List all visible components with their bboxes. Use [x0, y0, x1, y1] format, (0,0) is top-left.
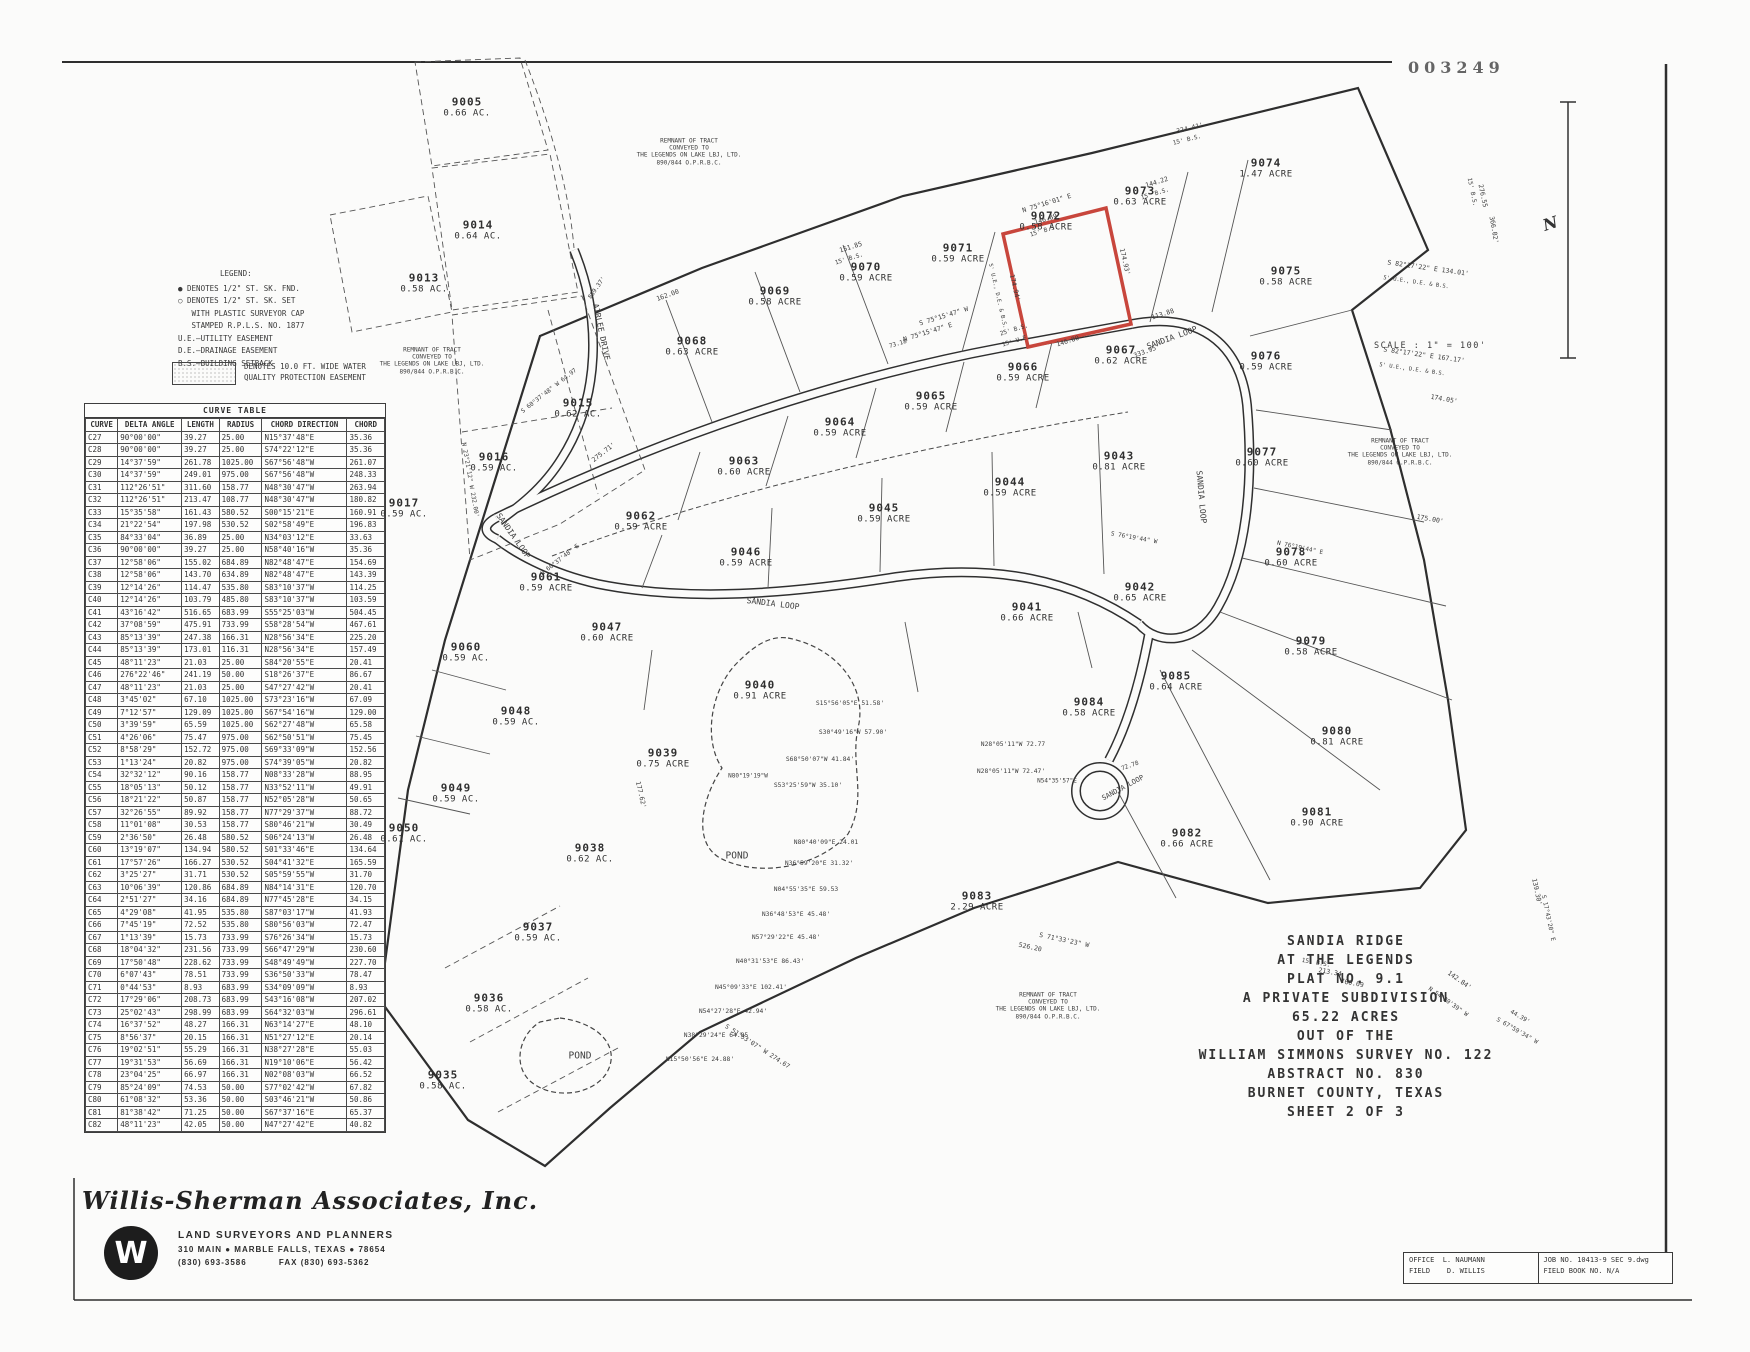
title-line: A PRIVATE SUBDIVISION: [1190, 989, 1502, 1008]
map-annotation: N80°19'19"W: [728, 772, 768, 779]
info-left: OFFICE L. NAUMANNFIELD D. WILLIS: [1404, 1253, 1539, 1283]
map-annotation: 146.80: [1056, 335, 1081, 349]
map-annotation: SANDIA LOOP: [1194, 470, 1208, 524]
note-layer: SANDIA LOOPSANDIA LOOPSANDIA LOOPSANDIA …: [0, 0, 1750, 1352]
map-annotation: SANDIA LOOP: [746, 596, 800, 612]
map-annotation: AIRLEE DRIVE: [590, 303, 611, 362]
map-annotation: S 82°17'22" E 134.01': [1387, 259, 1469, 278]
title-line: BURNET COUNTY, TEXAS: [1190, 1084, 1502, 1103]
map-annotation: N36°59'20"E 31.32': [785, 860, 853, 868]
map-annotation: 174.94': [1007, 274, 1021, 302]
title-block-lines: SANDIA RIDGEAT THE LEGENDSPLAT NO. 9.1A …: [1190, 932, 1502, 1122]
map-annotation: POND: [569, 1050, 592, 1061]
firm-logo-letter: W: [114, 1236, 147, 1271]
map-annotation: S 76°19'44" W: [1110, 530, 1158, 545]
info-left-line: FIELD D. WILLIS: [1409, 1266, 1533, 1277]
firm-tagline: LAND SURVEYORS AND PLANNERS: [178, 1230, 394, 1241]
map-annotation: N36°48'53"E 45.48': [762, 911, 830, 919]
title-line: ABSTRACT NO. 830: [1190, 1065, 1502, 1084]
map-annotation: 889.37': [587, 276, 607, 301]
plat-sheet: 003249 SCALE : 1" = 100' N LEGEND: ● DEN…: [0, 0, 1750, 1352]
info-left-line: OFFICE L. NAUMANN: [1409, 1255, 1533, 1266]
map-annotation: SANDIA LOOP: [1101, 773, 1146, 802]
map-annotation: N 23°21'12" W 232.00': [460, 442, 480, 518]
firm-logo: W: [104, 1226, 158, 1280]
info-right: JOB NO. 10413-9 SEC 9.dwgFIELD BOOK NO. …: [1539, 1253, 1673, 1283]
map-annotation: 15' B.S.: [1140, 186, 1170, 201]
map-annotation: REMNANT OF TRACT CONVEYED TO THE LEGENDS…: [380, 347, 485, 376]
map-annotation: N80°40'09"E 24.01: [794, 839, 858, 847]
firm-name: Willis-Sherman Associates, Inc.: [82, 1186, 538, 1215]
map-annotation: 5' U.E., D.E. & B.S.: [986, 263, 1007, 329]
map-annotation: 5' U.E., D.E. & B.S.: [1383, 275, 1450, 291]
map-annotation: 72.78: [1120, 760, 1139, 773]
map-annotation: S53°25'59"W 35.10': [774, 782, 842, 790]
map-annotation: N45°09'33"E 102.41': [715, 984, 787, 992]
title-block: SANDIA RIDGEAT THE LEGENDSPLAT NO. 9.1A …: [1190, 932, 1502, 1122]
map-annotation: N40°31'53"E 86.43': [736, 958, 804, 966]
map-annotation: 15' B.S.: [834, 251, 864, 266]
map-annotation: S 17°43'20" E: [1540, 894, 1557, 941]
map-annotation: S 71°33'23" W: [1038, 932, 1089, 950]
map-annotation: 366.02': [1487, 216, 1499, 244]
map-annotation: N04°55'35"E 59.53: [774, 886, 838, 894]
map-annotation: SANDIA LOOP: [494, 512, 532, 561]
title-line: SHEET 2 OF 3: [1190, 1103, 1502, 1122]
map-annotation: 175.00': [1416, 514, 1444, 526]
firm-address: 310 MAIN ● MARBLE FALLS, TEXAS ● 78654: [178, 1245, 394, 1254]
map-annotation: S15°56'05"E 51.58': [816, 700, 884, 708]
map-annotation: N54°27'28"E 42.94': [699, 1008, 767, 1016]
map-annotation: 73.18: [888, 338, 907, 350]
map-annotation: 113.88: [1151, 308, 1176, 322]
map-annotation: REMNANT OF TRACT CONVEYED TO THE LEGENDS…: [1348, 438, 1453, 467]
map-annotation: 162.00: [656, 288, 681, 303]
map-annotation: REMNANT OF TRACT CONVEYED TO THE LEGENDS…: [637, 138, 742, 167]
map-annotation: 174.05': [1430, 394, 1458, 406]
map-annotation: S 60°37'48" W 64.97: [520, 367, 579, 415]
map-annotation: N 75°16'01" E: [1022, 193, 1073, 215]
info-right-line: FIELD BOOK NO. N/A: [1544, 1266, 1668, 1277]
map-annotation: 44.39': [1509, 1008, 1531, 1025]
firm-info: LAND SURVEYORS AND PLANNERS 310 MAIN ● M…: [178, 1230, 394, 1267]
map-annotation: N28°05'11"W 72.77: [981, 741, 1045, 749]
firm-phone: (830) 693-3586 FAX (830) 693-5362: [178, 1258, 394, 1267]
title-line: SANDIA RIDGE: [1190, 932, 1502, 951]
map-annotation: N 60°37'48" E: [539, 543, 580, 578]
title-line: PLAT NO. 9.1: [1190, 970, 1502, 989]
info-right-line: JOB NO. 10413-9 SEC 9.dwg: [1544, 1255, 1668, 1266]
map-annotation: N57°29'22"E 45.48': [752, 934, 820, 942]
map-annotation: 5' U.E., D.E. & B.S.: [1379, 362, 1446, 378]
map-annotation: N 76°19'44" E: [1276, 540, 1323, 557]
title-line: 65.22 ACRES: [1190, 1008, 1502, 1027]
map-annotation: N54°35'57"E: [1037, 777, 1077, 784]
map-annotation: 333.95': [1133, 344, 1161, 361]
map-annotation: N28°05'11"W 72.47': [977, 768, 1045, 776]
map-annotation: 275.71': [591, 441, 617, 464]
map-annotation: 15' B.S.: [1029, 223, 1059, 238]
map-annotation: REMNANT OF TRACT CONVEYED TO THE LEGENDS…: [996, 992, 1101, 1021]
map-annotation: N15°50'56"E 24.88': [666, 1056, 734, 1064]
map-annotation: S30°49'16"W 57.90': [819, 729, 887, 737]
title-line: AT THE LEGENDS: [1190, 951, 1502, 970]
title-line: WILLIAM SIMMONS SURVEY NO. 122: [1190, 1046, 1502, 1065]
map-annotation: POND: [726, 850, 749, 861]
map-annotation: 174.93': [1117, 248, 1131, 276]
job-info-box: OFFICE L. NAUMANNFIELD D. WILLIS JOB NO.…: [1403, 1252, 1673, 1284]
map-annotation: 177.62': [633, 781, 647, 809]
map-annotation: 526.20: [1018, 942, 1043, 955]
title-line: OUT OF THE: [1190, 1027, 1502, 1046]
map-annotation: S68°50'07"W 41.84': [786, 756, 854, 764]
map-annotation: S 82°17'22" E 167.17': [1383, 346, 1465, 365]
